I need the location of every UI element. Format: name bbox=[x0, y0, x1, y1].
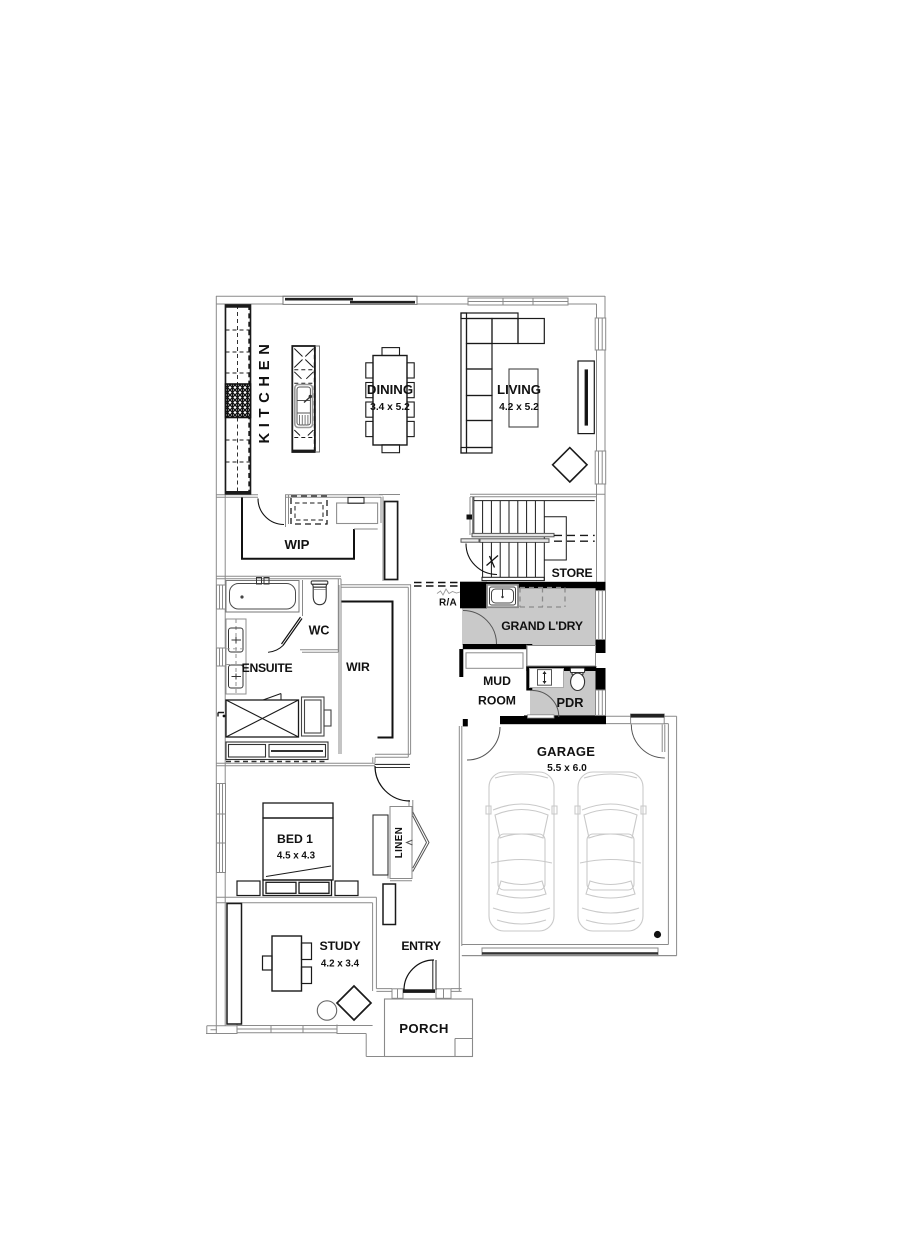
svg-text:WIP: WIP bbox=[285, 537, 310, 552]
svg-text:PDR: PDR bbox=[556, 695, 583, 710]
svg-text:LINEN: LINEN bbox=[394, 827, 405, 858]
svg-text:WIR: WIR bbox=[346, 660, 370, 674]
svg-text:3.4 x 5.2: 3.4 x 5.2 bbox=[370, 402, 410, 413]
svg-text:GARAGE: GARAGE bbox=[537, 744, 595, 759]
svg-text:MUD: MUD bbox=[483, 674, 511, 688]
svg-text:ENSUITE: ENSUITE bbox=[242, 661, 293, 675]
svg-text:DINING: DINING bbox=[367, 382, 413, 397]
svg-text:STORE: STORE bbox=[552, 566, 593, 580]
svg-text:4.5 x 4.3: 4.5 x 4.3 bbox=[277, 851, 316, 862]
svg-text:ROOM: ROOM bbox=[478, 694, 516, 708]
svg-text:5.5 x 6.0: 5.5 x 6.0 bbox=[547, 763, 587, 774]
svg-text:4.2 x 5.2: 4.2 x 5.2 bbox=[499, 402, 539, 413]
svg-text:BED 1: BED 1 bbox=[277, 832, 313, 846]
svg-text:4.2 x 3.4: 4.2 x 3.4 bbox=[321, 959, 360, 970]
svg-text:GRAND L'DRY: GRAND L'DRY bbox=[501, 619, 583, 633]
svg-text:KITCHEN: KITCHEN bbox=[257, 339, 273, 444]
svg-text:PORCH: PORCH bbox=[399, 1021, 449, 1036]
svg-text:STUDY: STUDY bbox=[320, 939, 362, 953]
svg-text:R/A: R/A bbox=[439, 598, 457, 609]
svg-text:LIVING: LIVING bbox=[497, 382, 541, 397]
svg-text:ENTRY: ENTRY bbox=[401, 939, 441, 953]
svg-text:WC: WC bbox=[309, 624, 330, 638]
